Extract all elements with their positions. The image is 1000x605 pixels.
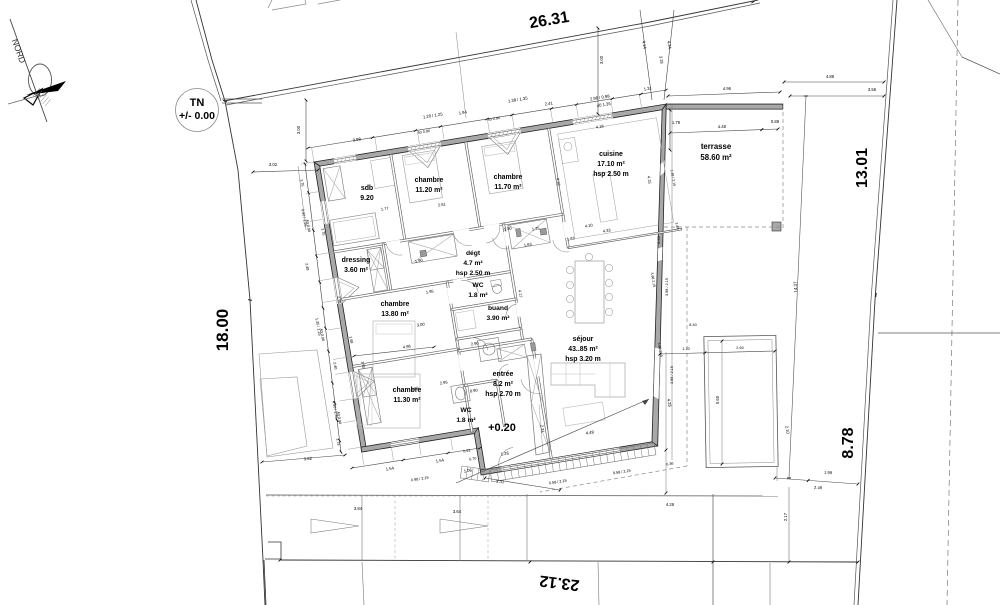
svg-text:1.79: 1.79 xyxy=(672,120,681,125)
svg-text:8.40: 8.40 xyxy=(689,323,696,327)
svg-text:terrasse: terrasse xyxy=(701,142,732,151)
svg-text:4.48: 4.48 xyxy=(718,124,727,129)
svg-text:dégt: dégt xyxy=(466,250,481,257)
svg-text:sdb: sdb xyxy=(361,185,373,192)
svg-text:4.86: 4.86 xyxy=(826,74,835,79)
svg-text:3.64: 3.64 xyxy=(453,509,462,514)
svg-text:2.17: 2.17 xyxy=(783,512,788,521)
svg-text:4.7 m²: 4.7 m² xyxy=(463,260,483,267)
svg-text:chambre: chambre xyxy=(415,177,444,184)
svg-text:entrée: entrée xyxy=(493,371,514,378)
svg-text:dressing: dressing xyxy=(342,257,371,264)
svg-text:11.70 m²: 11.70 m² xyxy=(494,184,522,191)
svg-text:43..85 m²: 43..85 m² xyxy=(568,346,598,353)
svg-text:58.60 m²: 58.60 m² xyxy=(700,153,732,162)
svg-text:2.60: 2.60 xyxy=(736,346,743,350)
svg-text:11.30 m²: 11.30 m² xyxy=(393,397,421,404)
svg-text:+0.20: +0.20 xyxy=(488,422,516,434)
svg-text:11.20 m²: 11.20 m² xyxy=(415,187,443,194)
svg-text:3.00: 3.00 xyxy=(296,125,301,134)
svg-text:hsp 2.50 m: hsp 2.50 m xyxy=(593,171,629,178)
svg-text:3.82: 3.82 xyxy=(304,456,313,462)
svg-text:4.96: 4.96 xyxy=(723,86,732,91)
svg-text:WC: WC xyxy=(460,407,471,414)
svg-text:0.88: 0.88 xyxy=(771,119,780,124)
svg-text:17.10 m²: 17.10 m² xyxy=(597,161,625,168)
svg-text:hsp 3.20 m: hsp 3.20 m xyxy=(565,356,601,363)
svg-text:3.02: 3.02 xyxy=(269,162,278,167)
svg-text:3.98 / 2.15: 3.98 / 2.15 xyxy=(665,278,669,296)
svg-text:TN: TN xyxy=(190,97,205,109)
svg-text:8.2 m²: 8.2 m² xyxy=(493,381,514,388)
svg-text:cuisine: cuisine xyxy=(599,151,623,158)
svg-text:13.80 m²: 13.80 m² xyxy=(381,311,409,318)
svg-text:hsp 2.70 m: hsp 2.70 m xyxy=(485,391,521,398)
svg-text:13.01: 13.01 xyxy=(854,148,871,188)
svg-text:6.40: 6.40 xyxy=(657,236,661,243)
svg-text:chambre: chambre xyxy=(381,301,410,308)
svg-text:1.8 m²: 1.8 m² xyxy=(456,417,476,424)
svg-text:3.84: 3.84 xyxy=(354,506,363,511)
svg-text:3.66 / 2.15: 3.66 / 2.15 xyxy=(670,366,674,384)
svg-text:5.60: 5.60 xyxy=(715,395,720,404)
svg-text:hsp 2.50 m: hsp 2.50 m xyxy=(456,270,491,277)
svg-text:2.49: 2.49 xyxy=(814,485,823,491)
svg-text:buand: buand xyxy=(488,305,508,312)
svg-text:+/- 0.00: +/- 0.00 xyxy=(179,110,215,122)
svg-text:4.26: 4.26 xyxy=(666,502,675,507)
svg-text:1.70: 1.70 xyxy=(682,347,689,351)
svg-text:3.31: 3.31 xyxy=(496,479,505,485)
svg-text:chambre: chambre xyxy=(494,174,523,181)
svg-text:WC: WC xyxy=(472,282,483,289)
svg-text:3.00: 3.00 xyxy=(599,55,604,64)
svg-text:1.99: 1.99 xyxy=(824,470,833,476)
svg-text:séjour: séjour xyxy=(573,336,594,343)
svg-text:3.56: 3.56 xyxy=(868,87,877,92)
svg-text:3.60 m²: 3.60 m² xyxy=(344,267,368,274)
svg-text:18.00: 18.00 xyxy=(213,309,232,352)
svg-text:1.8 m²: 1.8 m² xyxy=(468,292,488,299)
svg-text:8.78: 8.78 xyxy=(840,427,857,458)
svg-text:3.90 m²: 3.90 m² xyxy=(486,315,510,322)
svg-text:9.20: 9.20 xyxy=(360,195,374,202)
